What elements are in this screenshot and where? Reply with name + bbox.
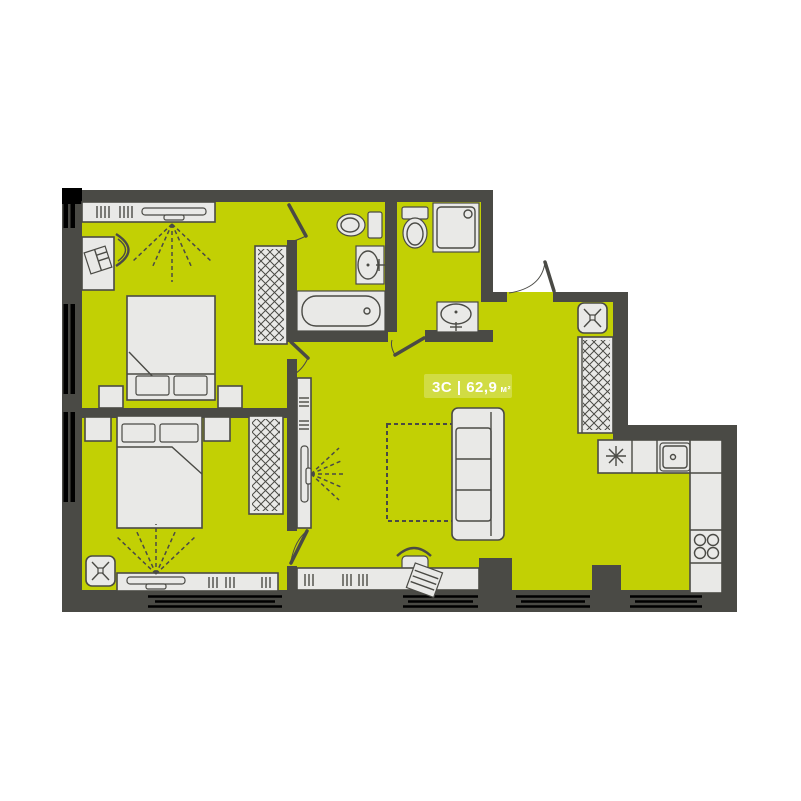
sofa-icon xyxy=(452,408,504,540)
window-icon xyxy=(62,188,82,204)
toilet-icon xyxy=(402,207,428,248)
vent-shaft-icon xyxy=(86,556,115,586)
double-bed-icon xyxy=(117,416,202,528)
floor-plan: 3С | 62,9м² xyxy=(0,0,801,801)
hall xyxy=(578,303,613,433)
wardrobe-icon xyxy=(578,337,613,433)
wall-left xyxy=(62,190,82,612)
bathtub-icon xyxy=(297,291,385,331)
entrance-door-icon xyxy=(509,262,554,293)
bookshelf-icon xyxy=(297,568,479,590)
nightstand-icon xyxy=(85,417,111,441)
nightstand-icon xyxy=(99,386,123,408)
sink-icon xyxy=(437,302,478,332)
wardrobe-icon xyxy=(255,246,287,344)
nightstand-icon xyxy=(218,386,242,408)
nightstand-icon xyxy=(204,417,230,441)
vent-shaft-icon xyxy=(578,303,607,333)
floor-plan-canvas: 3С | 62,9м² xyxy=(0,0,801,801)
wall-east-seg3 xyxy=(287,566,297,590)
wall-top xyxy=(62,190,493,202)
wall-kitchen-top xyxy=(613,425,737,440)
wall-right xyxy=(722,425,737,612)
pillow-icon xyxy=(160,424,198,442)
sink-icon xyxy=(356,246,385,284)
kitchen-sink-icon xyxy=(660,443,690,471)
wall-bath2-right xyxy=(481,190,493,302)
pillow-icon xyxy=(174,376,207,395)
toilet-icon xyxy=(337,212,382,238)
wall-hall-right xyxy=(613,292,628,440)
wardrobe-icon xyxy=(249,416,283,514)
wall-entry-stub xyxy=(493,292,507,302)
shower-icon xyxy=(433,203,479,252)
wall-bath1-bottom xyxy=(287,330,388,342)
wall-bath-divider xyxy=(385,190,397,332)
kitchen-counter-icon xyxy=(690,440,722,593)
wall-east-seg1 xyxy=(287,240,297,341)
area-label: 3С | 62,9м² xyxy=(424,374,512,398)
wall-pillar-living-kitchen xyxy=(479,558,512,612)
double-bed-icon xyxy=(127,296,215,400)
wall-pillar-kitchen xyxy=(592,565,621,593)
cooktop-icon xyxy=(606,446,626,466)
wall-east-seg2 xyxy=(287,359,297,531)
pillow-icon xyxy=(122,424,155,442)
pillow-icon xyxy=(136,376,169,395)
